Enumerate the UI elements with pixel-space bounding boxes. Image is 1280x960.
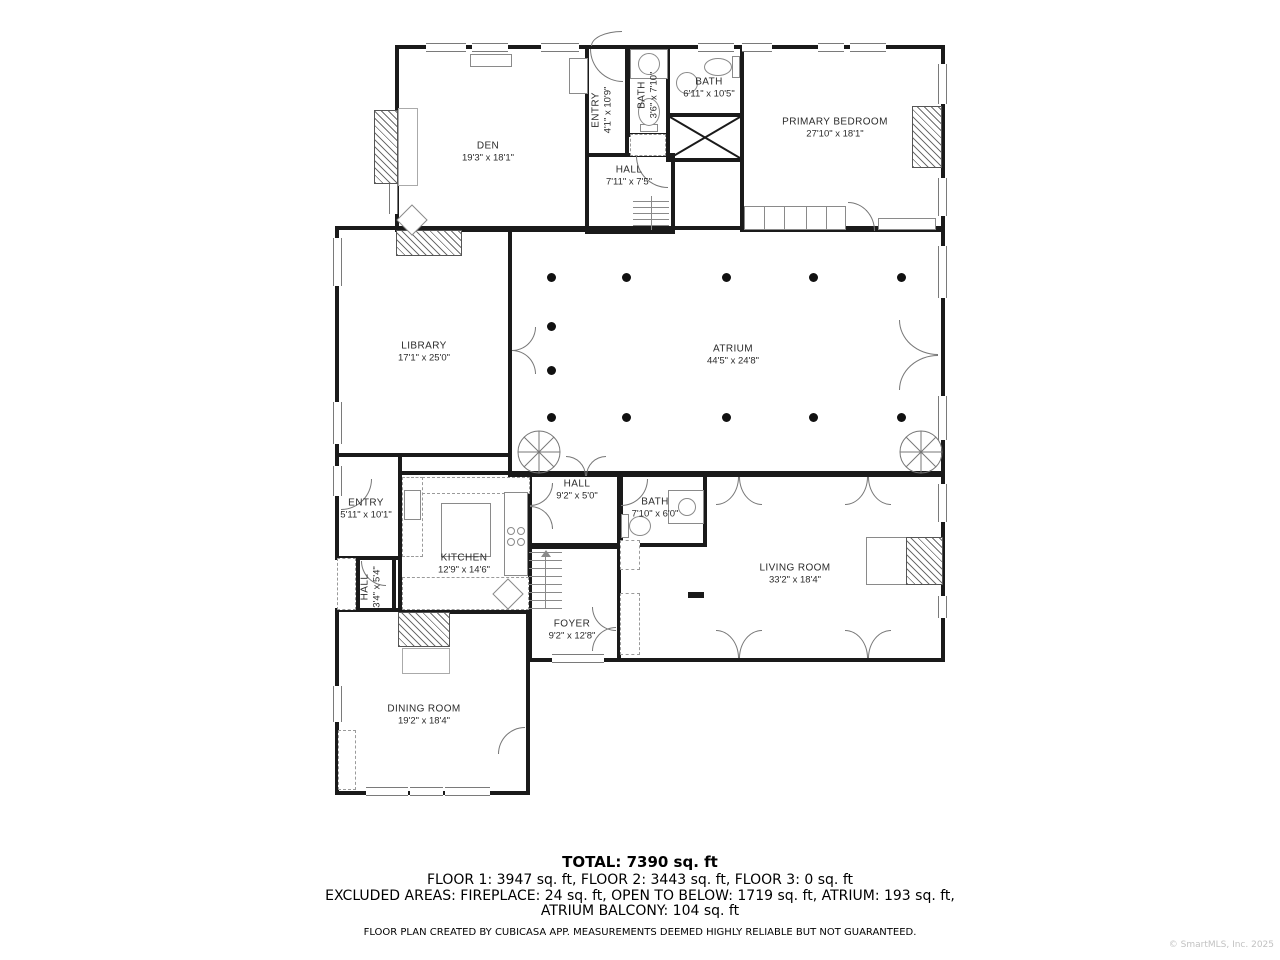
room-dimensions: 5'11" x 10'1"	[340, 509, 391, 521]
room-label-foyer: FOYER9'2" x 12'8"	[549, 617, 596, 642]
fireplace-primary	[912, 106, 942, 168]
room-dimensions: 9'2" x 5'0"	[556, 490, 598, 502]
stairs-lower-arrow-line	[545, 556, 546, 608]
closet-hall-small	[337, 558, 356, 610]
fireplace-living-box	[866, 537, 908, 585]
window	[938, 484, 947, 522]
room-name: FOYER	[549, 617, 596, 630]
column-dot	[722, 273, 731, 282]
cabinet-dining	[338, 730, 356, 790]
closet-primary	[744, 206, 846, 230]
wall-stub-living	[688, 592, 704, 598]
room-name: ENTRY	[589, 87, 602, 134]
sink-bath-lower	[678, 498, 696, 516]
window	[389, 184, 398, 214]
spiral-stairs-icon	[516, 429, 562, 475]
room-dimensions: 44'5" x 24'8"	[707, 355, 759, 367]
kitchen-sink	[404, 490, 421, 520]
window	[472, 43, 508, 52]
room-name: LIVING ROOM	[759, 561, 830, 574]
column-dot	[547, 273, 556, 282]
room-label-bath-upper: BATH6'11" x 10'5"	[683, 75, 734, 100]
hearth-den	[398, 108, 418, 186]
room-dimensions: 3'6" x 7'10"	[648, 72, 660, 119]
room-dimensions: 33'2" x 18'4"	[759, 574, 830, 586]
window	[742, 43, 772, 52]
room-name: ENTRY	[340, 496, 391, 509]
room-name: HALL	[556, 477, 598, 490]
room-label-living-room: LIVING ROOM33'2" x 18'4"	[759, 561, 830, 586]
column-dot	[547, 366, 556, 375]
room-label-hall-upper: HALL7'11" x 7'5"	[606, 163, 652, 188]
room-name: BATH	[632, 495, 679, 508]
column-dot	[622, 413, 631, 422]
window	[333, 238, 342, 286]
room-name: BATH	[683, 75, 734, 88]
floor-plan-canvas: DEN19'3" x 18'1"ENTRY4'1" x 10'9"BATH3'6…	[0, 0, 1280, 960]
window	[818, 43, 844, 52]
room-dimensions: 27'10" x 18'1"	[782, 128, 888, 140]
closet-foyer-b	[620, 593, 640, 655]
column-dot	[809, 273, 818, 282]
window	[426, 43, 466, 52]
stove-burner	[507, 527, 515, 535]
column-dot	[547, 322, 556, 331]
room-dimensions: 7'11" x 7'5"	[606, 176, 652, 188]
room-label-bath-lower: BATH7'10" x 6'0"	[632, 495, 679, 520]
room-name: PRIMARY BEDROOM	[782, 115, 888, 128]
window	[333, 402, 342, 444]
closet-divider	[826, 206, 827, 230]
room-label-dining-room: DINING ROOM19'2" x 18'4"	[387, 702, 460, 727]
stove-burner	[507, 538, 515, 546]
shelf-primary	[878, 218, 936, 230]
kitchen-island	[441, 503, 491, 557]
stairs-upper-rail	[651, 196, 652, 230]
bench-den	[470, 54, 512, 67]
summary-excluded-1: EXCLUDED AREAS: FIREPLACE: 24 sq. ft, OP…	[0, 888, 1280, 904]
room-label-bath-small: BATH3'6" x 7'10"	[635, 72, 660, 119]
corner-diamond-kitchen	[492, 578, 524, 610]
room-dimensions: 12'9" x 14'6"	[438, 564, 490, 576]
hearth-dining	[402, 648, 450, 674]
stove-burner	[517, 527, 525, 535]
room-dimensions: 17'1" x 25'0"	[398, 352, 450, 364]
room-name: BATH	[635, 72, 648, 119]
room-name: KITCHEN	[438, 551, 490, 564]
summary-disclaimer: FLOOR PLAN CREATED BY CUBICASA APP. MEAS…	[0, 927, 1280, 938]
corner-diamond-den	[396, 204, 428, 236]
window	[938, 396, 947, 440]
room-label-hall-lower: HALL9'2" x 5'0"	[556, 477, 598, 502]
room-dimensions: 19'3" x 18'1"	[462, 152, 514, 164]
window	[541, 43, 579, 52]
stairs-lower-tread	[529, 608, 562, 609]
room-dimensions: 7'10" x 6'0"	[632, 508, 679, 520]
toilet-tank-bath-lower	[621, 514, 629, 538]
room-label-primary-bedroom: PRIMARY BEDROOM27'10" x 18'1"	[782, 115, 888, 140]
room-name: DEN	[462, 139, 514, 152]
room-name: LIBRARY	[398, 339, 450, 352]
window	[938, 246, 947, 298]
column-dot	[547, 413, 556, 422]
closet-divider	[784, 206, 785, 230]
stairs-lower-arrowhead	[541, 550, 551, 557]
window	[850, 43, 886, 52]
window	[938, 178, 947, 216]
room-label-hall-small: HALL3'4" x 5'4"	[358, 566, 383, 608]
fireplace-den	[374, 110, 398, 184]
room-name: HALL	[606, 163, 652, 176]
stove-burner	[517, 538, 525, 546]
cabinet-den	[569, 58, 588, 94]
room-label-kitchen: KITCHEN12'9" x 14'6"	[438, 551, 490, 576]
room-dimensions: 9'2" x 12'8"	[549, 630, 596, 642]
column-dot	[622, 273, 631, 282]
column-dot	[809, 413, 818, 422]
room-label-atrium: ATRIUM44'5" x 24'8"	[707, 342, 759, 367]
shower-x-icon	[670, 117, 740, 158]
window	[333, 466, 342, 496]
closet-bath-small	[630, 134, 666, 156]
room-name: ATRIUM	[707, 342, 759, 355]
column-dot	[897, 413, 906, 422]
column-dot	[897, 273, 906, 282]
column-dot	[722, 413, 731, 422]
room-label-entry-lower: ENTRY5'11" x 10'1"	[340, 496, 391, 521]
summary-total: TOTAL: 7390 sq. ft	[0, 853, 1280, 871]
door-arc	[591, 31, 622, 46]
closet-divider	[806, 206, 807, 230]
window	[938, 596, 947, 618]
room-dimensions: 19'2" x 18'4"	[387, 715, 460, 727]
window	[410, 787, 443, 796]
summary-excluded-2: ATRIUM BALCONY: 104 sq. ft	[0, 903, 1280, 919]
window	[333, 686, 342, 722]
room-name: HALL	[358, 566, 371, 608]
window	[366, 787, 408, 796]
room-dimensions: 6'11" x 10'5"	[683, 88, 734, 100]
window	[552, 654, 604, 663]
toilet-bath-upper	[704, 58, 732, 76]
closet-divider	[764, 206, 765, 230]
closet-foyer-a	[620, 540, 640, 570]
room-label-den: DEN19'3" x 18'1"	[462, 139, 514, 164]
window	[445, 787, 490, 796]
room-dimensions: 4'1" x 10'9"	[602, 87, 614, 134]
room-label-library: LIBRARY17'1" x 25'0"	[398, 339, 450, 364]
fireplace-dining	[398, 612, 450, 647]
summary-floors: FLOOR 1: 3947 sq. ft, FLOOR 2: 3443 sq. …	[0, 872, 1280, 888]
window	[938, 64, 947, 104]
fireplace-living	[906, 537, 943, 585]
watermark: © SmartMLS, Inc. 2025	[1169, 940, 1274, 950]
room-label-entry-upper: ENTRY4'1" x 10'9"	[589, 87, 614, 134]
room-dimensions: 3'4" x 5'4"	[371, 566, 383, 608]
window	[698, 43, 734, 52]
room-name: DINING ROOM	[387, 702, 460, 715]
